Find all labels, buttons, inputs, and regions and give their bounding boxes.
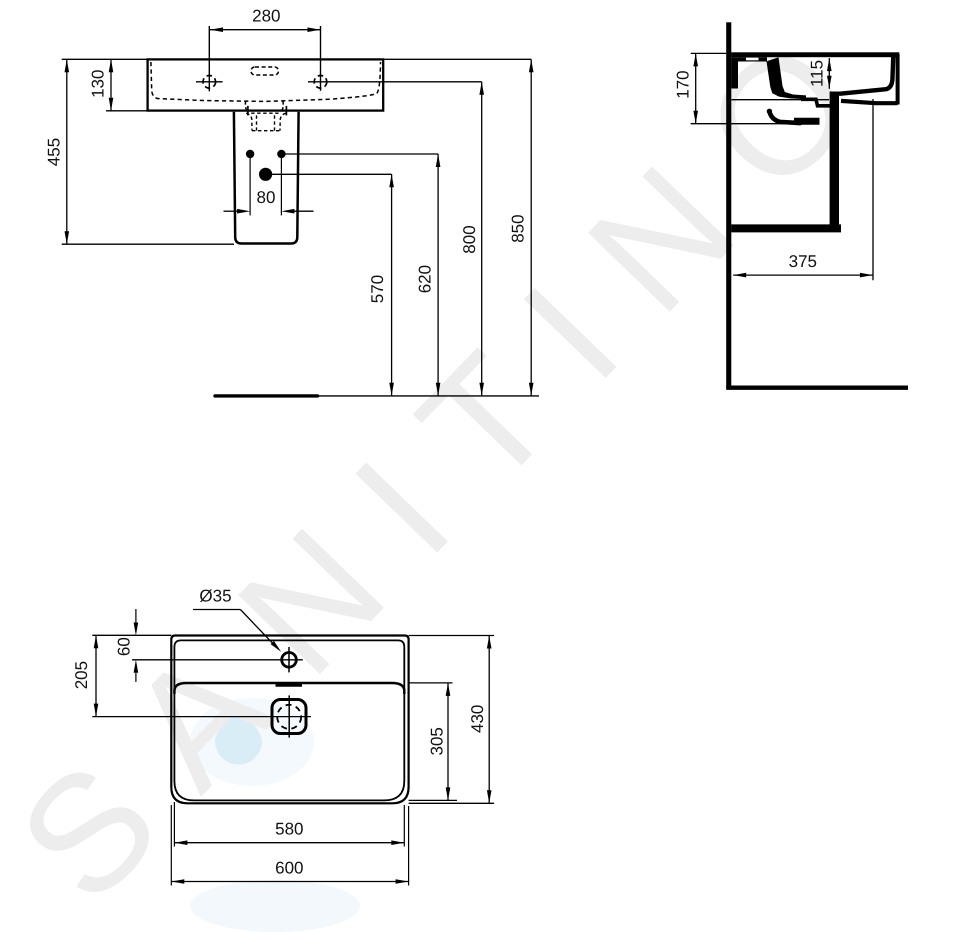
svg-text:455: 455 xyxy=(44,138,63,166)
svg-text:305: 305 xyxy=(427,727,446,755)
svg-text:580: 580 xyxy=(275,820,303,839)
svg-text:280: 280 xyxy=(252,7,280,26)
svg-text:600: 600 xyxy=(275,858,303,877)
svg-text:205: 205 xyxy=(72,661,91,689)
svg-text:430: 430 xyxy=(468,705,487,733)
svg-text:60: 60 xyxy=(114,637,133,656)
svg-text:80: 80 xyxy=(257,188,276,207)
svg-text:375: 375 xyxy=(789,252,817,271)
svg-text:850: 850 xyxy=(509,214,528,242)
svg-text:Ø35: Ø35 xyxy=(199,587,231,606)
svg-text:620: 620 xyxy=(416,265,435,293)
svg-text:115: 115 xyxy=(807,60,826,87)
svg-text:570: 570 xyxy=(368,275,387,303)
svg-text:800: 800 xyxy=(460,225,479,253)
svg-text:130: 130 xyxy=(89,70,108,98)
svg-text:SANITINO: SANITINO xyxy=(0,0,924,932)
svg-text:170: 170 xyxy=(674,70,693,98)
